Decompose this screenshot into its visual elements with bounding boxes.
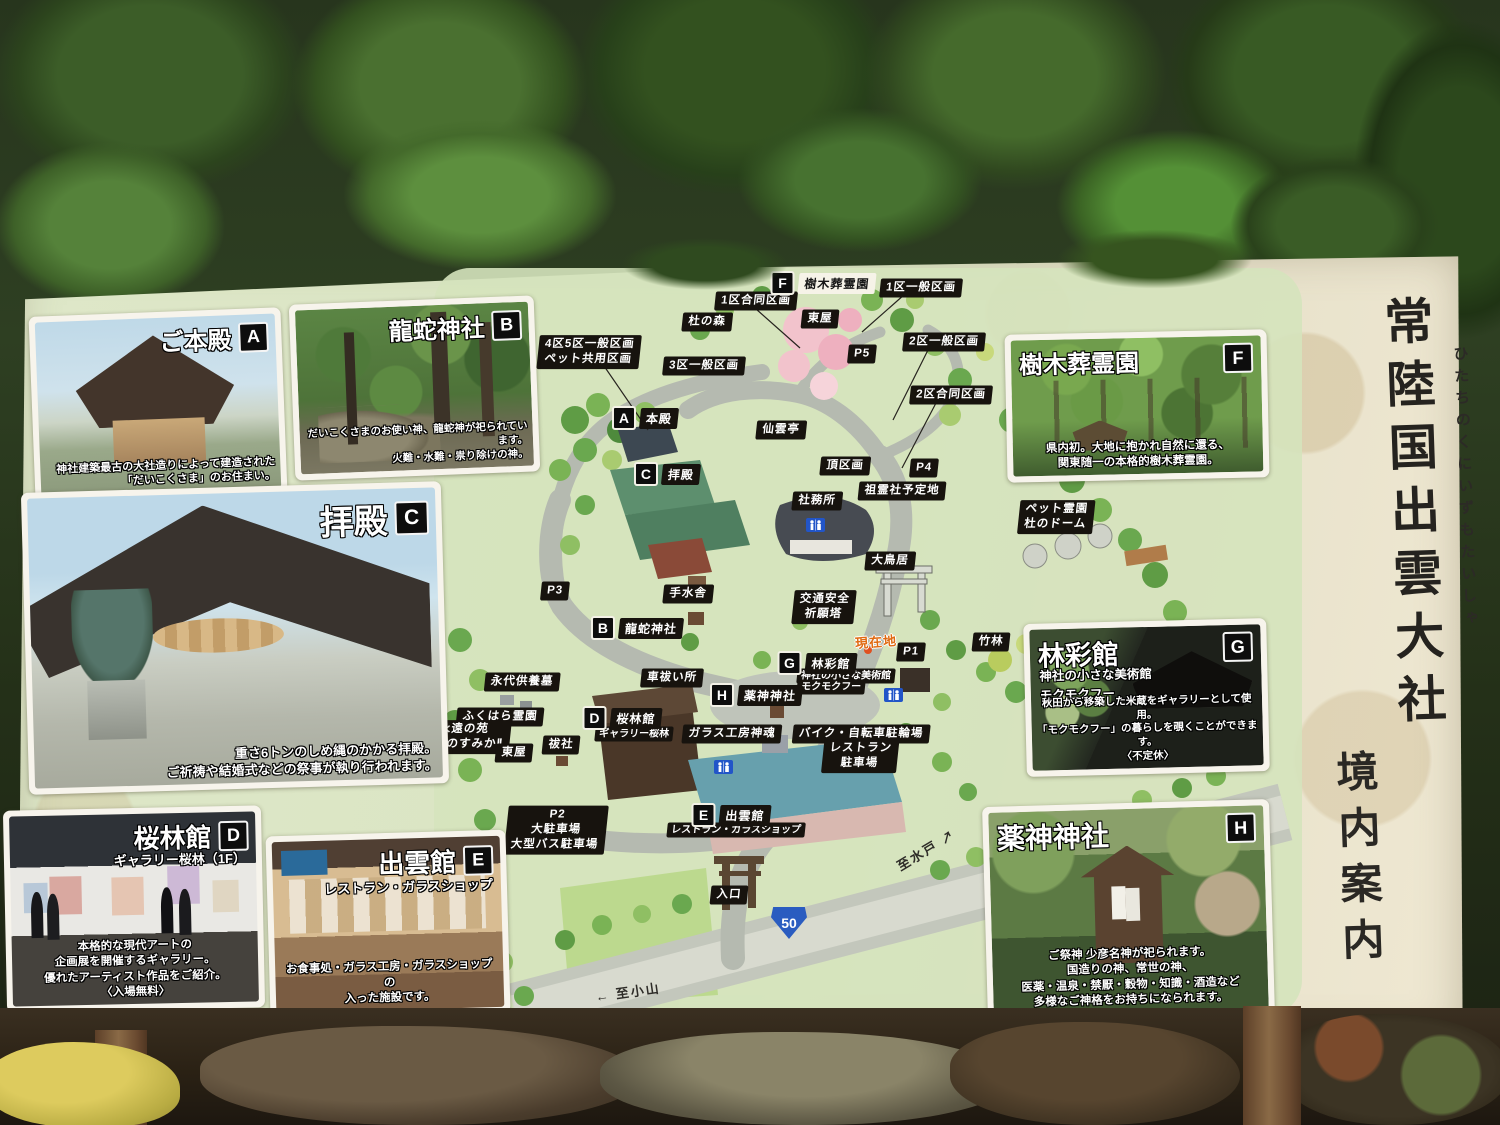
yakujin-shrine-building <box>770 706 784 718</box>
rock <box>950 1022 1240 1125</box>
komainu-statue <box>70 588 154 689</box>
map-label-entrance: 入口 <box>710 886 749 905</box>
panel-gohonden: ご本殿 A 神社建築最古の大社造りによって建造された 「だいこくさま」のお住まい… <box>29 307 288 503</box>
map-label-restaurant-parking: レストラン 駐車場 <box>821 739 899 773</box>
overhanging-leaves <box>590 228 820 300</box>
rock <box>600 1032 1010 1125</box>
rinsaikan-building <box>900 668 930 692</box>
map-label-kuiki45: 4区5区一般区画 ペット共用区画 <box>536 335 641 369</box>
izumokan-photo: 出雲館 E レストラン・ガラスショップ お食事処・ガラス工房・ガラスショップの … <box>272 836 505 1013</box>
rinsaikan-photo: 林彩館 G 神社の小さな美術館 モクモクフー 秋田から移築した米蔵をギャラリーと… <box>1029 624 1263 771</box>
map-label-p5: P5 <box>847 345 877 364</box>
map-label-p2: P2 大駐車場 大型バス駐車場 <box>504 806 609 855</box>
rock <box>200 1026 640 1125</box>
panel-orinkan: 桜林館 D ギャラリー桜林（1F） 本格的な現代アートの 企画展を開催するギャラ… <box>3 805 265 1012</box>
map-label-yakujin: H 薬神神社 <box>710 683 802 707</box>
map-badge-e: E <box>691 803 715 827</box>
map-label-haraesha: 祓社 <box>542 736 581 755</box>
map-label-eitai: 永代供養墓 <box>484 673 560 692</box>
panel-ryuja: 龍蛇神社 B だいこくさまのお使い神、龍蛇神が祀られています。 火難・水難・祟り… <box>289 295 541 480</box>
map-label-ippan1: 1区一般区画 <box>879 279 963 298</box>
map-label-morinomori: 杜の森 <box>681 313 732 332</box>
map-label-glass-studio: ガラス工房神魂 <box>681 725 782 744</box>
panel-title: 樹木葬霊園 <box>1019 343 1140 381</box>
panel-badge-a: A <box>238 321 269 352</box>
orinkan-photo: 桜林館 D ギャラリー桜林（1F） 本格的な現代アートの 企画展を開催するギャラ… <box>9 811 259 1006</box>
map-label-rinsai-sub2: モクモクフー <box>796 680 866 695</box>
panel-title: ご本殿 <box>159 320 232 358</box>
current-location-label: 現在地 <box>854 630 897 652</box>
gohonden-photo: ご本殿 A 神社建築最古の大社造りによって建造された 「だいこくさま」のお住まい… <box>35 313 282 496</box>
map-label-senuntei: 仙雲亭 <box>755 421 806 440</box>
panel-title: 薬神神社 <box>996 815 1109 858</box>
map-label-kurumaharai: 車祓い所 <box>640 669 704 688</box>
panel-caption: 秋田から移築した米蔵をギャラリーとして使用。 「モクモクフー」の暮らしを覗くこと… <box>1036 692 1259 767</box>
panel-badge-e: E <box>463 845 494 876</box>
map-label-izumokan: E 出雲館 <box>691 803 770 827</box>
panel-izumokan: 出雲館 E レストラン・ガラスショップ お食事処・ガラス工房・ガラスショップの … <box>265 830 510 1020</box>
map-label-chikurin: 竹林 <box>972 633 1011 652</box>
map-badge-a: A <box>612 406 636 430</box>
panel-haiden: 拝殿 C 重さ6トンのしめ縄のかかる拝殿。 ご祈祷や結婚式などの祭事が執り行われ… <box>21 481 449 795</box>
ryuja-shrine-building <box>688 612 704 625</box>
map-label-p3: P3 <box>540 582 570 601</box>
panel-badge-b: B <box>491 309 522 340</box>
yakujin-photo: 薬神神社 H ご祭神 少彦名神が祀られます。 国造りの神、常世の神、 医薬・温泉… <box>988 805 1269 1016</box>
map-label-p4: P4 <box>909 459 939 478</box>
map-badge-d: D <box>582 706 606 730</box>
panel-badge-c: C <box>394 500 429 535</box>
panel-subtitle: レストラン・ガラスショップ <box>324 874 493 898</box>
panel-caption: 本格的な現代アートの 企画展を開催するギャラリー。 優れたアーティスト作品をご紹… <box>17 937 254 1003</box>
panel-yakujin: 薬神神社 H ご祭神 少彦名神が祀られます。 国造りの神、常世の神、 医薬・温泉… <box>982 799 1275 1022</box>
overhanging-leaves <box>1020 218 1290 300</box>
map-label-soreisha: 祖霊社予定地 <box>858 482 947 501</box>
panel-caption: お食事処・ガラス工房・ガラスショップの 入った施設です。 <box>280 957 499 1009</box>
panel-badge-d: D <box>218 820 249 851</box>
panel-subtitle: ギャラリー桜林（1F） <box>114 848 247 870</box>
ryuja-photo: 龍蛇神社 B だいこくさまのお使い神、龍蛇神が祀られています。 火難・水難・祟り… <box>295 302 534 475</box>
map-label-ryuja: B 龍蛇神社 <box>591 616 683 640</box>
map-label-azumaya-top: 東屋 <box>801 310 840 329</box>
map-label-p1: P1 <box>896 643 926 662</box>
sign-subtitle: 境内案内 <box>1323 749 1392 975</box>
map-label-orinkan: D 桜林館 <box>582 706 661 730</box>
map-label-honden: A 本殿 <box>612 406 678 430</box>
panel-caption: 重さ6トンのしめ縄のかかる拝殿。 ご祈祷や結婚式などの祭事が執り行われます。 <box>39 739 438 784</box>
panel-caption: ご祭神 少彦名神が祀られます。 国造りの神、常世の神、 医薬・温泉・禁厭・穀物・… <box>997 944 1264 1012</box>
map-label-azumaya-low: 東屋 <box>495 744 534 763</box>
map-label-ippan3: 3区一般区画 <box>662 357 746 376</box>
map-label-rinsaikan: G 林彩館 <box>777 651 856 675</box>
panel-title: 龍蛇神社 <box>388 308 485 347</box>
panel-title: 拝殿 <box>319 494 388 545</box>
map-label-temizusha: 手水舎 <box>662 585 713 604</box>
sign-main-title: 常陸国出雲大社 <box>1369 294 1455 737</box>
map-label-kotsu: 交通安全 祈願塔 <box>791 590 857 624</box>
sign-post-right <box>1243 1006 1301 1125</box>
panel-badge-g: G <box>1222 631 1253 662</box>
forest-floor-leaves <box>1280 1014 1500 1125</box>
sign-title-block: ひたちのくにいずもたいしゃ 常陸国出雲大社 境内案内 <box>1305 293 1495 1018</box>
panel-badge-f: F <box>1223 343 1254 374</box>
map-label-otorii: 大鳥居 <box>864 552 915 571</box>
map-badge-g: G <box>777 651 801 675</box>
haraesha-building <box>556 756 568 766</box>
map-label-shamusho: 社務所 <box>791 492 842 511</box>
panel-caption: だいこくさまのお使い神、龍蛇神が祀られています。 火難・水難・祟り除けの神。 <box>304 420 528 470</box>
map-badge-h: H <box>710 683 734 707</box>
map-label-haiden: C 拝殿 <box>634 462 700 486</box>
map-label-ippan2: 2区一般区画 <box>902 333 986 352</box>
haiden-photo: 拝殿 C 重さ6トンのしめ縄のかかる拝殿。 ご祈祷や結婚式などの祭事が執り行われ… <box>27 487 443 788</box>
photo-of-shrine-grounds-signboard: 1区合同区画 F 樹木葬霊園 1区一般区画 杜の森 東屋 P5 2区一般区画 2… <box>0 0 1500 1125</box>
panel-caption: 県内初。大地に抱かれ自然に還る、 関東随一の本格的樹木葬霊園。 <box>1018 437 1259 472</box>
jumokuso-photo: 樹木葬霊園 F 県内初。大地に抱かれ自然に還る、 関東随一の本格的樹木葬霊園。 <box>1011 335 1264 476</box>
map-label-pet-reien: ペット霊園 杜のドーム <box>1017 500 1095 534</box>
map-badge-c: C <box>634 462 658 486</box>
map-badge-b: B <box>591 616 615 640</box>
panel-jumokuso: 樹木葬霊園 F 県内初。大地に抱かれ自然に還る、 関東随一の本格的樹木葬霊園。 <box>1004 329 1269 482</box>
panel-rinsaikan: 林彩館 G 神社の小さな美術館 モクモクフー 秋田から移築した米蔵をギャラリーと… <box>1023 618 1270 777</box>
panel-badge-h: H <box>1225 812 1256 843</box>
map-label-goudou2: 2区合同区画 <box>909 386 993 405</box>
map-label-itadaki: 頂区画 <box>819 457 870 476</box>
